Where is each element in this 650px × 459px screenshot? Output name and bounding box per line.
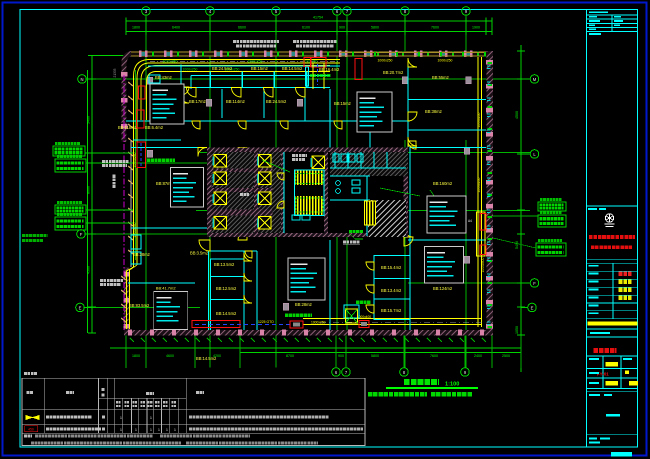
svg-text:2400: 2400 [474, 354, 482, 358]
svg-text:BB:14.5m2: BB:14.5m2 [282, 66, 303, 71]
svg-text:BB:13.5m2: BB:13.5m2 [214, 262, 235, 267]
svg-text:F: F [80, 232, 83, 237]
svg-text:1: 1 [120, 416, 122, 420]
svg-text:M: M [533, 77, 537, 82]
svg-text:BB:41.7m2: BB:41.7m2 [156, 286, 177, 291]
svg-text:1225 GTO: 1225 GTO [258, 320, 274, 324]
svg-text:BB:124m2: BB:124m2 [433, 286, 453, 291]
svg-text:BB:55m2: BB:55m2 [432, 75, 450, 80]
svg-text:BB:17m2: BB:17m2 [189, 99, 207, 104]
svg-text:1000x250: 1000x250 [248, 59, 263, 63]
svg-text:2500: 2500 [502, 354, 510, 358]
svg-text:BB:24.5m2: BB:24.5m2 [212, 66, 233, 71]
svg-text:1800: 1800 [132, 25, 140, 29]
svg-text:BB:38m2: BB:38m2 [133, 252, 151, 257]
svg-text:BB:16.4m2: BB:16.4m2 [319, 67, 340, 72]
svg-text:N: N [80, 77, 83, 82]
svg-text:1: 1 [120, 428, 122, 432]
svg-text:BB:118m2: BB:118m2 [118, 125, 138, 130]
svg-text:BB:28m2: BB:28m2 [295, 302, 313, 307]
svg-text:E: E [79, 305, 82, 310]
svg-text:1000x250: 1000x250 [378, 59, 393, 63]
svg-text:E: E [531, 305, 534, 310]
svg-text:1000x250: 1000x250 [163, 59, 178, 63]
svg-text:41754: 41754 [313, 16, 323, 20]
svg-text:BB:14.5m2: BB:14.5m2 [216, 311, 237, 316]
svg-text:1: 1 [158, 428, 160, 432]
svg-text:4500: 4500 [515, 111, 519, 119]
svg-text:900: 900 [338, 354, 344, 358]
svg-text:1: 1 [174, 428, 176, 432]
svg-text:BB:43m2: BB:43m2 [155, 75, 173, 80]
svg-text:1: 1 [150, 416, 152, 420]
svg-text:5800: 5800 [371, 25, 379, 29]
svg-text:BB:20.7m2: BB:20.7m2 [383, 70, 404, 75]
svg-text:1000x250: 1000x250 [183, 67, 198, 71]
svg-text:5800: 5800 [371, 354, 379, 358]
svg-text:1000x250: 1000x250 [133, 152, 137, 167]
svg-text:450: 450 [28, 428, 34, 432]
svg-text:1000x500: 1000x500 [481, 257, 485, 272]
svg-text:BB:24.5m2: BB:24.5m2 [266, 99, 287, 104]
svg-text:6100: 6100 [302, 25, 310, 29]
svg-text:BB:160m2: BB:160m2 [433, 181, 453, 186]
svg-text:1050: 1050 [515, 326, 519, 334]
svg-text:900: 900 [339, 25, 345, 29]
svg-text:1000x250: 1000x250 [477, 112, 481, 127]
svg-text:BB:38m2: BB:38m2 [425, 109, 443, 114]
svg-text:BB:15.7m2: BB:15.7m2 [381, 308, 402, 313]
svg-text:1000x250: 1000x250 [311, 321, 326, 325]
svg-text:BB:3.5m2: BB:3.5m2 [190, 251, 209, 256]
svg-text:4500: 4500 [87, 266, 91, 274]
svg-text:4600: 4600 [166, 354, 174, 358]
svg-text:5400: 5400 [515, 241, 519, 249]
svg-text:6600: 6600 [238, 25, 246, 29]
svg-text:1: 1 [166, 428, 168, 432]
svg-text:BB:14.5m2: BB:14.5m2 [196, 356, 217, 361]
svg-text:BB:15m2: BB:15m2 [334, 101, 352, 106]
svg-text:7600: 7600 [431, 25, 439, 29]
svg-text:BB:83.5m2: BB:83.5m2 [129, 303, 150, 308]
svg-text:1: 1 [135, 428, 137, 432]
svg-text:1:100: 1:100 [445, 382, 459, 388]
svg-text:BB:13.4m2: BB:13.4m2 [381, 288, 402, 293]
svg-text:8700: 8700 [286, 354, 294, 358]
svg-text:1: 1 [150, 428, 152, 432]
svg-text:F: F [533, 281, 536, 286]
svg-text:5400: 5400 [87, 116, 91, 124]
svg-text:A4: A4 [468, 219, 472, 223]
svg-text:6400: 6400 [172, 25, 180, 29]
svg-text:1900: 1900 [472, 25, 480, 29]
svg-text:BB:114m2: BB:114m2 [226, 99, 246, 104]
svg-text:BB:15m2: BB:15m2 [251, 66, 269, 71]
svg-text:7600: 7600 [430, 354, 438, 358]
svg-text:8000: 8000 [87, 186, 91, 194]
svg-text:1000x250: 1000x250 [438, 59, 453, 63]
svg-text:BB:15.4m2: BB:15.4m2 [381, 265, 402, 270]
svg-text:BB:12.5m2: BB:12.5m2 [216, 286, 237, 291]
svg-text:1800: 1800 [132, 354, 140, 358]
svg-text:21333: 21333 [113, 68, 117, 77]
svg-text:1000x250: 1000x250 [477, 177, 481, 192]
svg-text:BB:6.4m2: BB:6.4m2 [145, 125, 164, 130]
